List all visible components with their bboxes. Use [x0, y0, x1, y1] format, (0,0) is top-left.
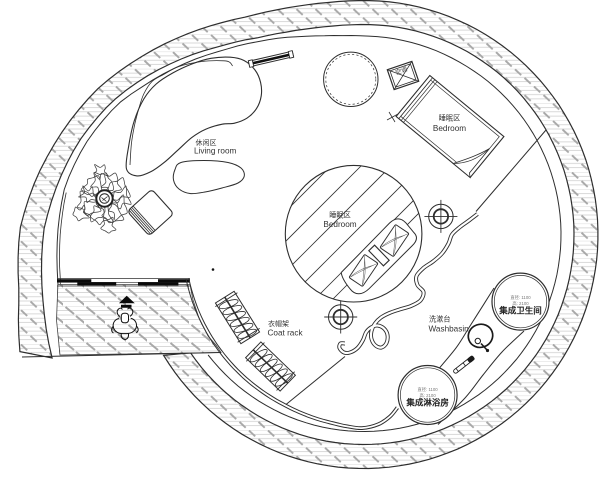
- svg-text:集成卫生间: 集成卫生间: [498, 306, 542, 316]
- svg-text:直径: 1100: 直径: 1100: [510, 294, 531, 300]
- svg-text:直径: 1100: 直径: 1100: [417, 386, 438, 392]
- svg-text:睡眠区: 睡眠区: [439, 114, 461, 123]
- svg-text:Bedroom: Bedroom: [433, 124, 466, 133]
- svg-text:Coat rack: Coat rack: [268, 328, 304, 337]
- svg-text:洗漱台: 洗漱台: [429, 315, 451, 324]
- svg-text:Bedroom: Bedroom: [323, 220, 356, 229]
- svg-text:集成淋浴房: 集成淋浴房: [405, 398, 449, 408]
- svg-text:Living room: Living room: [194, 146, 237, 155]
- svg-text:衣帽架: 衣帽架: [268, 319, 289, 328]
- svg-text:Washbasin: Washbasin: [429, 325, 470, 334]
- svg-text:睡眠区: 睡眠区: [329, 211, 351, 220]
